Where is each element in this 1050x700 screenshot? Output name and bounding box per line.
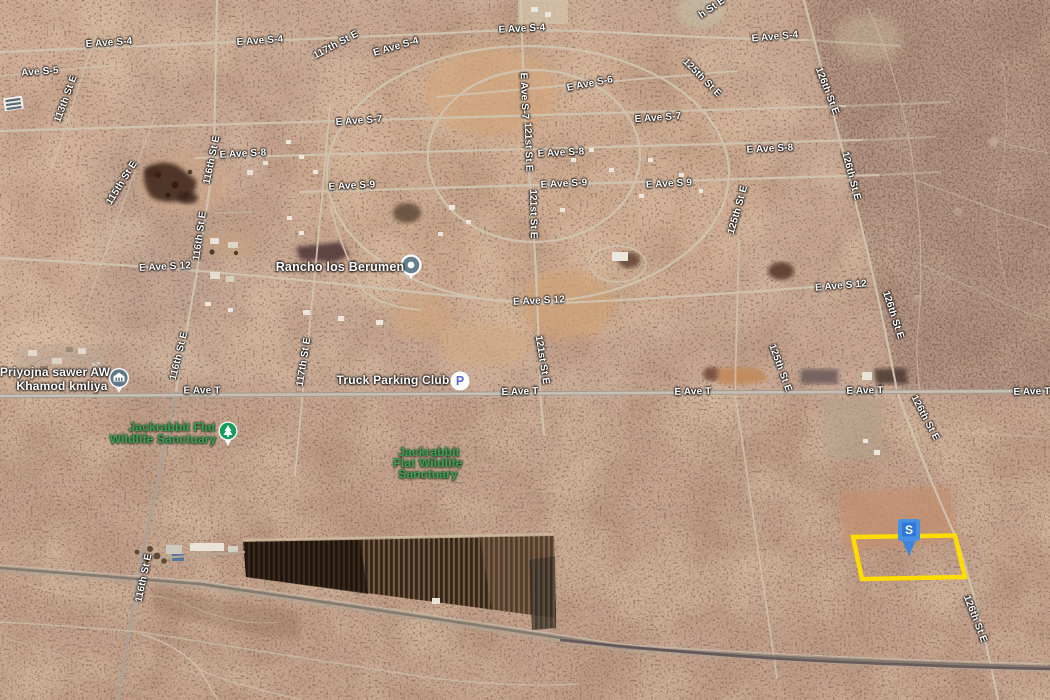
svg-text:S: S	[905, 523, 913, 537]
svg-text:P: P	[456, 374, 464, 388]
